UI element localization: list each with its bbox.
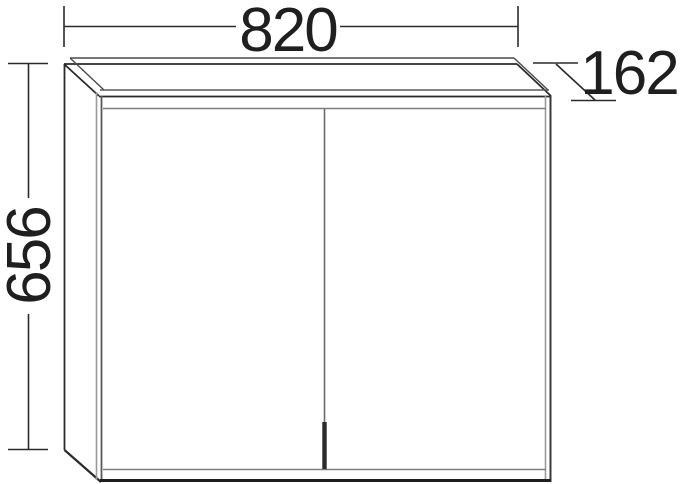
width-dimension-label: 820 <box>239 0 337 65</box>
cabinet-body <box>64 58 551 482</box>
depth-dimension: 162 <box>533 39 678 108</box>
bottom-left-depth-edge <box>65 450 102 482</box>
dimension-drawing-canvas: 820 656 162 <box>0 0 682 484</box>
depth-dimension-label: 162 <box>580 39 677 108</box>
top-right-depth-edge-inner <box>517 64 551 96</box>
cabinet-dimension-drawing: 820 656 162 <box>0 0 682 484</box>
cabinet-top-face <box>64 58 551 97</box>
height-dimension-label: 656 <box>0 207 64 304</box>
cabinet-right-edge <box>546 96 551 482</box>
height-dimension: 656 <box>0 64 64 450</box>
width-dimension: 820 <box>64 0 518 65</box>
door-handle <box>322 422 326 469</box>
cabinet-front-doors <box>103 109 546 470</box>
cabinet-left-side <box>65 64 102 482</box>
